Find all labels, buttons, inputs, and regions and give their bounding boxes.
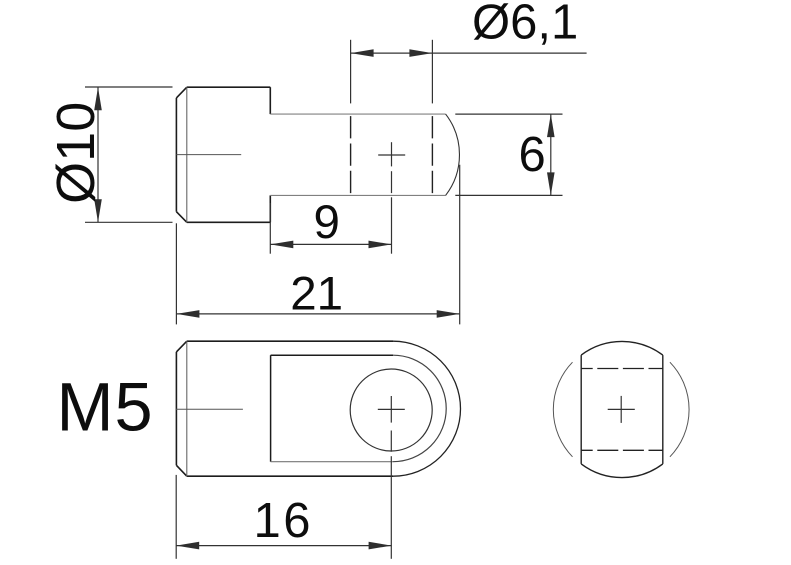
svg-text:M5: M5: [57, 368, 154, 445]
svg-text:16: 16: [254, 494, 314, 548]
svg-text:Ø6,1: Ø6,1: [472, 0, 578, 50]
svg-text:6: 6: [519, 128, 546, 182]
svg-text:9: 9: [314, 196, 340, 249]
svg-text:Ø10: Ø10: [46, 102, 106, 204]
svg-text:21: 21: [290, 268, 343, 321]
